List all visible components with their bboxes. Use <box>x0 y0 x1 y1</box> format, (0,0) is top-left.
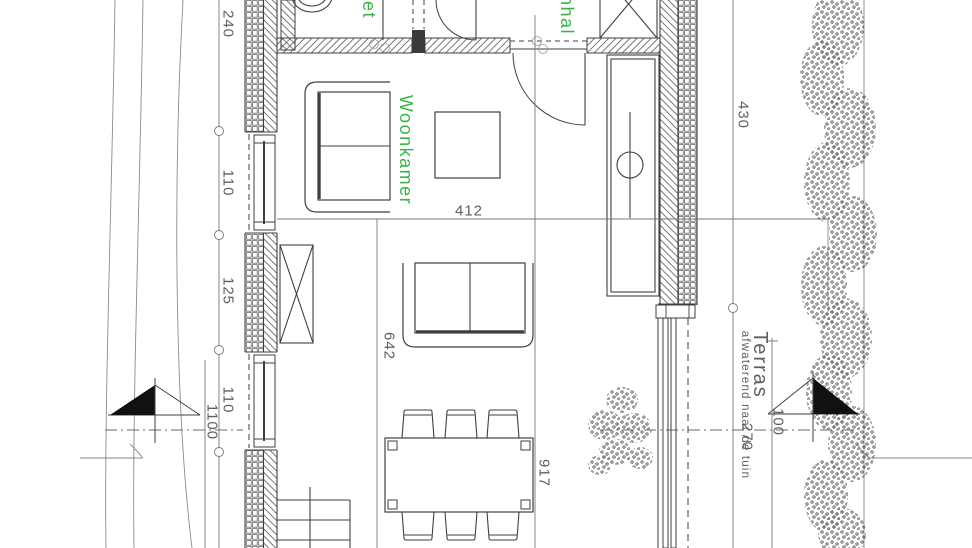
dim-917: 917 <box>536 459 553 487</box>
dim-125: 125 <box>220 277 237 305</box>
hall-crossed-box <box>600 0 657 38</box>
cabinet <box>277 487 350 548</box>
toilet-fixture <box>292 0 332 12</box>
label-hall-partial: nhal <box>557 0 577 35</box>
sofa-two-seat <box>305 82 390 212</box>
hedge-vegetation <box>800 0 877 548</box>
sofa-facing-up <box>403 263 533 347</box>
benchmark-triangle-left <box>108 378 200 443</box>
label-terras: Terras <box>749 331 771 399</box>
dim-1100: 1100 <box>204 404 221 440</box>
dim-412: 412 <box>455 203 483 220</box>
chair <box>402 512 519 540</box>
dim-430: 430 <box>735 101 752 129</box>
chair <box>402 410 519 438</box>
dim-642: 642 <box>381 332 398 360</box>
door-swing-arc <box>513 53 585 125</box>
dim-100: 100 <box>770 408 787 436</box>
door-swing-arc <box>436 0 476 40</box>
dim-110-upper: 110 <box>220 170 237 197</box>
dim-110-lower: 110 <box>220 387 237 414</box>
plant <box>588 387 653 475</box>
dining-table <box>385 410 533 540</box>
duct-crossed-box <box>280 245 313 343</box>
floor-plan-canvas: 240 110 125 110 1100 412 642 917 430 270… <box>0 0 972 548</box>
dim-240: 240 <box>220 10 237 38</box>
exterior-wall-right <box>658 0 697 305</box>
exterior-wall-left <box>245 0 277 548</box>
label-terras-note: afwaterend naar de tuin <box>739 331 751 479</box>
kitchen-unit <box>607 55 659 296</box>
door-jamb-stub <box>412 30 425 53</box>
window-lower-left <box>243 352 279 450</box>
hall-door <box>510 38 587 125</box>
floor-plan-drawing: 240 110 125 110 1100 412 642 917 430 270… <box>0 0 972 548</box>
window-upper-left <box>243 132 279 233</box>
interior-wall-top <box>277 30 660 53</box>
label-woonkamer: Woonkamer <box>396 95 416 205</box>
sliding-door <box>656 305 695 548</box>
room-labels: Woonkamer et nhal Terras afwaterend naar… <box>359 0 771 479</box>
side-table <box>435 112 500 178</box>
label-toilet-partial: et <box>359 1 379 19</box>
